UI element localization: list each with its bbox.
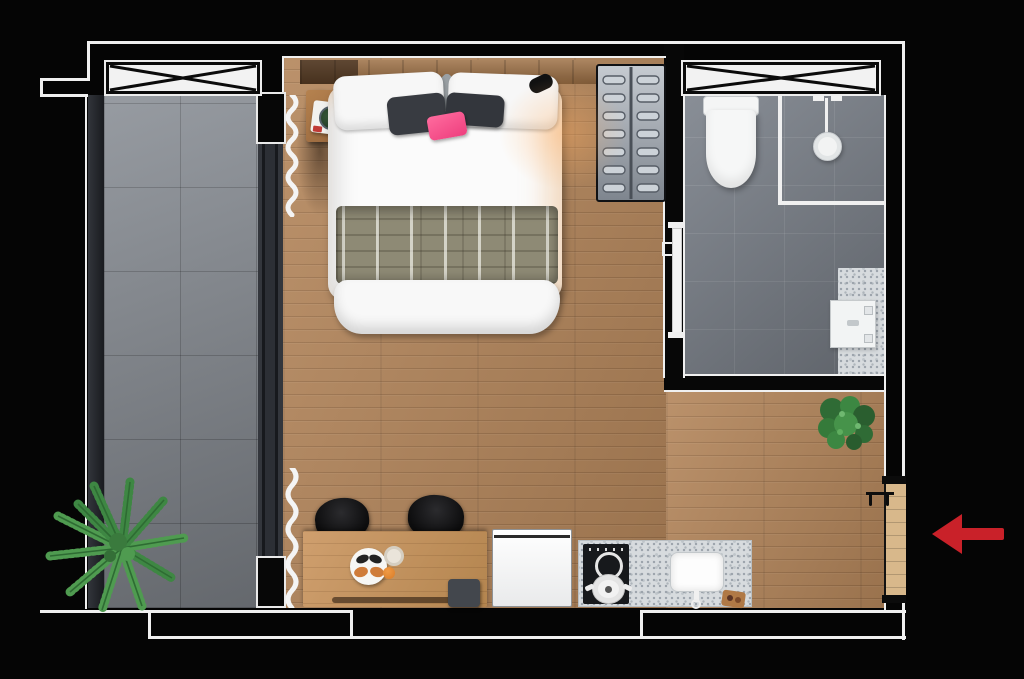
shower-bracket: [831, 95, 842, 101]
wall-line: [902, 598, 905, 640]
desk-stool: [448, 579, 480, 607]
wall-line: [884, 95, 886, 478]
wall-line: [148, 636, 906, 639]
cooktop-controls: [589, 548, 623, 551]
wall-line: [350, 610, 353, 639]
sliding-glass-door: [258, 95, 283, 608]
wall-line: [663, 198, 665, 378]
board-item: [727, 595, 733, 601]
wall-line: [87, 41, 90, 81]
breakfast-plate: [350, 548, 387, 585]
shower-bracket: [813, 95, 824, 101]
potted-bush: [812, 392, 880, 454]
board-item: [735, 597, 741, 603]
kitchen-sink: [670, 552, 724, 592]
book-label: [313, 125, 323, 132]
coat-hook: [886, 494, 889, 506]
side-plate: [384, 546, 404, 566]
door-jamb: [668, 222, 684, 228]
vanity-drain: [847, 320, 859, 326]
arrow-head: [932, 514, 962, 554]
bed-sheet-foot: [334, 280, 560, 334]
refrigerator: [492, 529, 572, 607]
entry-door-jamb: [882, 476, 906, 484]
coat-hook: [869, 494, 872, 506]
pot-lid-knob: [605, 586, 612, 593]
orange-fruit: [383, 567, 395, 579]
balcony-window: [106, 62, 260, 94]
floor-plan: [0, 0, 1024, 679]
shower-arm: [825, 98, 828, 136]
wall-line: [640, 610, 643, 639]
lamp-glow: [478, 58, 648, 208]
entrance-arrow: [930, 512, 1006, 556]
curtain-bottom: [283, 468, 301, 608]
shower-glass-partition: [778, 95, 782, 205]
slider-pocket-bottom: [256, 556, 286, 608]
x-brace-icon: [686, 65, 876, 91]
desk-drawer-groove: [332, 597, 460, 603]
slider-pocket-top: [256, 92, 286, 144]
vanity-faucet-control: [864, 334, 873, 343]
cutting-board: [721, 589, 746, 608]
curtain-top: [283, 95, 301, 217]
throw-blanket: [336, 206, 558, 284]
sink-faucet-base: [691, 599, 701, 609]
door-jamb: [668, 332, 684, 338]
toilet-bowl: [706, 110, 756, 188]
wall-line: [88, 41, 904, 44]
wall-line: [40, 78, 90, 81]
wall-line: [902, 41, 905, 478]
wall-line: [684, 374, 884, 376]
bathroom-window: [683, 62, 879, 94]
refrigerator-door-seam: [494, 535, 570, 538]
entry-door-jamb: [882, 595, 906, 603]
wall-line: [40, 94, 88, 97]
bathroom-door: [672, 228, 682, 334]
bathroom-door-handle: [662, 242, 672, 256]
arrow-shaft: [960, 528, 1004, 540]
x-brace-icon: [109, 65, 257, 91]
wall-line: [640, 610, 906, 613]
shower-glass-partition: [778, 201, 884, 205]
wall-line: [282, 56, 284, 96]
bathroom-partition-wall: [664, 41, 684, 392]
shower-head: [813, 132, 842, 161]
palm-plant: [44, 476, 194, 621]
vanity-faucet-control: [864, 306, 873, 315]
